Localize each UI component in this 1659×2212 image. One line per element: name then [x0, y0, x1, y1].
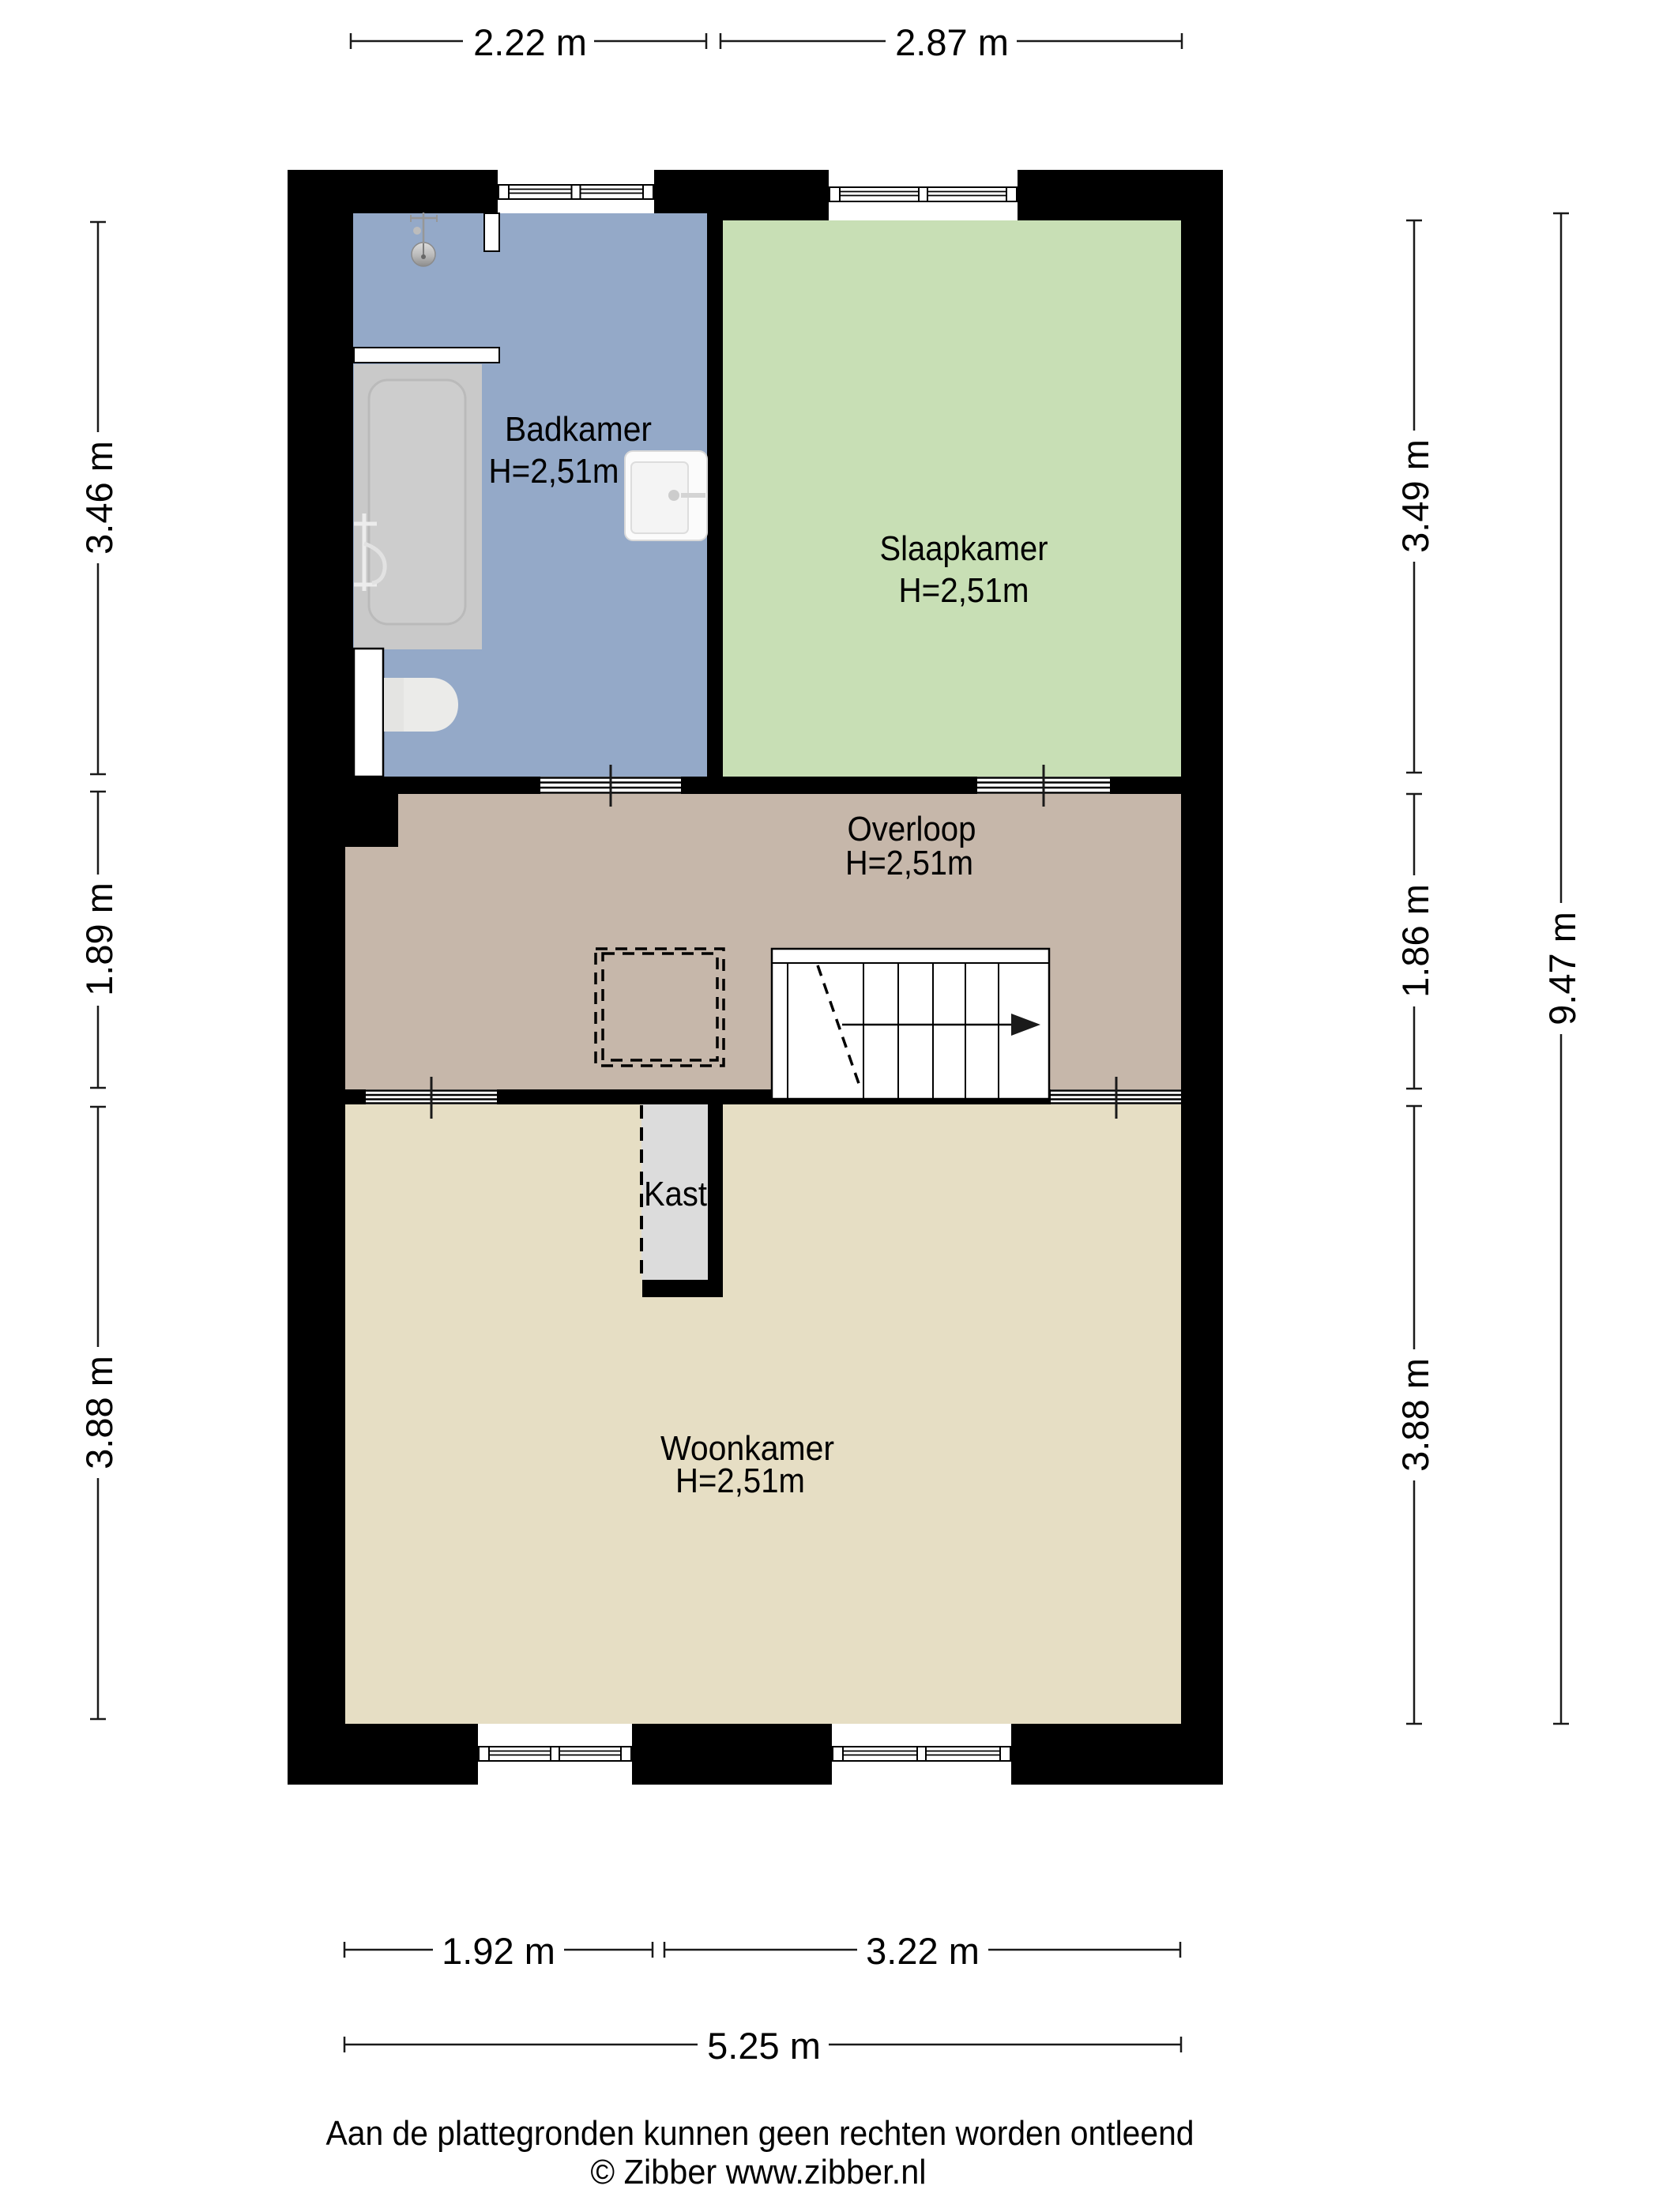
svg-text:H=2,51m: H=2,51m: [675, 1461, 805, 1500]
svg-text:2.87 m: 2.87 m: [895, 21, 1009, 63]
svg-text:5.25 m: 5.25 m: [707, 2025, 821, 2067]
svg-text:3.88 m: 3.88 m: [78, 1356, 120, 1469]
svg-text:© Zibber www.zibber.nl: © Zibber www.zibber.nl: [591, 2153, 927, 2191]
svg-text:H=2,51m: H=2,51m: [845, 844, 973, 882]
svg-text:Slaapkamer: Slaapkamer: [880, 529, 1048, 568]
svg-text:H=2,51m: H=2,51m: [489, 452, 619, 491]
svg-text:3.88 m: 3.88 m: [1394, 1358, 1436, 1472]
svg-text:1.86 m: 1.86 m: [1394, 884, 1436, 998]
svg-text:1.89 m: 1.89 m: [78, 882, 120, 996]
svg-text:1.92 m: 1.92 m: [442, 1930, 555, 1972]
svg-text:Aan de plattegronden kunnen ge: Aan de plattegronden kunnen geen rechten…: [326, 2114, 1194, 2153]
svg-text:2.22 m: 2.22 m: [473, 21, 587, 63]
svg-text:9.47 m: 9.47 m: [1541, 912, 1583, 1025]
svg-text:3.46 m: 3.46 m: [78, 441, 120, 555]
svg-text:Overloop: Overloop: [848, 810, 976, 848]
svg-text:Kast: Kast: [644, 1175, 707, 1213]
svg-text:3.22 m: 3.22 m: [866, 1930, 980, 1972]
svg-text:3.49 m: 3.49 m: [1394, 439, 1436, 553]
svg-text:H=2,51m: H=2,51m: [899, 571, 1029, 610]
svg-text:Badkamer: Badkamer: [505, 410, 652, 449]
